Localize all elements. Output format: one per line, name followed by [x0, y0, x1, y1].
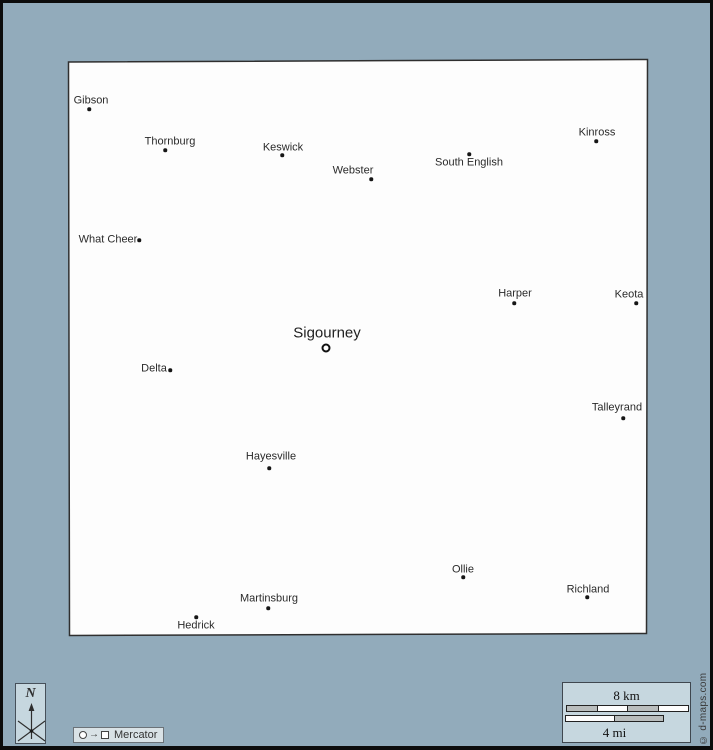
map-page: GibsonThornburgKeswickWebsterSouth Engli…	[0, 0, 713, 750]
scale-segment	[567, 706, 597, 711]
city-dot	[194, 615, 198, 619]
compass-rose-icon	[16, 701, 47, 743]
scale-panel: 8 km 4 mi	[562, 682, 691, 743]
scale-segment	[614, 716, 663, 721]
city-dot	[585, 595, 589, 599]
city-label: Martinsburg	[240, 594, 298, 605]
copyright-credit: © d-maps.com	[697, 667, 711, 745]
city-label: Gibson	[74, 96, 109, 107]
scale-segment	[566, 716, 614, 721]
scale-km-label: 8 km	[566, 689, 687, 702]
city-label: What Cheer	[79, 235, 138, 246]
city-label: South English	[435, 158, 503, 169]
city-label: Richland	[567, 585, 610, 596]
projection-label: Mercator	[114, 730, 157, 741]
city-label: Webster	[333, 166, 374, 177]
city-dot	[163, 148, 167, 152]
city-dot	[267, 466, 271, 470]
city-label: Talleyrand	[592, 403, 642, 414]
city-dot	[168, 368, 172, 372]
city-dot	[369, 177, 373, 181]
county-map	[3, 3, 713, 750]
right-arrow-icon: →	[89, 730, 99, 740]
scale-segment	[627, 706, 658, 711]
city-label: Keota	[615, 290, 644, 301]
scale-segment	[597, 706, 628, 711]
county-seat-marker	[322, 344, 331, 353]
mi-scale-bar	[565, 715, 664, 722]
projection-badge: → Mercator	[73, 727, 164, 743]
city-dot	[137, 238, 141, 242]
city-dot	[461, 575, 465, 579]
city-label: Sigourney	[293, 326, 361, 341]
city-dot	[512, 301, 516, 305]
city-dot	[87, 107, 91, 111]
city-label: Harper	[498, 289, 532, 300]
city-dot	[467, 152, 471, 156]
km-scale-bar	[566, 705, 689, 712]
scale-mi-label: 4 mi	[565, 726, 664, 739]
city-label: Kinross	[579, 128, 616, 139]
north-indicator: N	[15, 683, 46, 744]
city-dot	[266, 606, 270, 610]
north-label: N	[16, 687, 45, 701]
square-icon	[101, 731, 109, 739]
city-dot	[621, 416, 625, 420]
city-label: Keswick	[263, 143, 303, 154]
city-label: Delta	[141, 364, 167, 375]
circle-icon	[79, 731, 87, 739]
city-dot	[594, 139, 598, 143]
city-label: Hayesville	[246, 452, 296, 463]
city-label: Thornburg	[145, 137, 196, 148]
scale-segment	[658, 706, 689, 711]
city-label: Hedrick	[177, 621, 214, 632]
city-label: Ollie	[452, 565, 474, 576]
city-dot	[280, 153, 284, 157]
city-dot	[634, 301, 638, 305]
